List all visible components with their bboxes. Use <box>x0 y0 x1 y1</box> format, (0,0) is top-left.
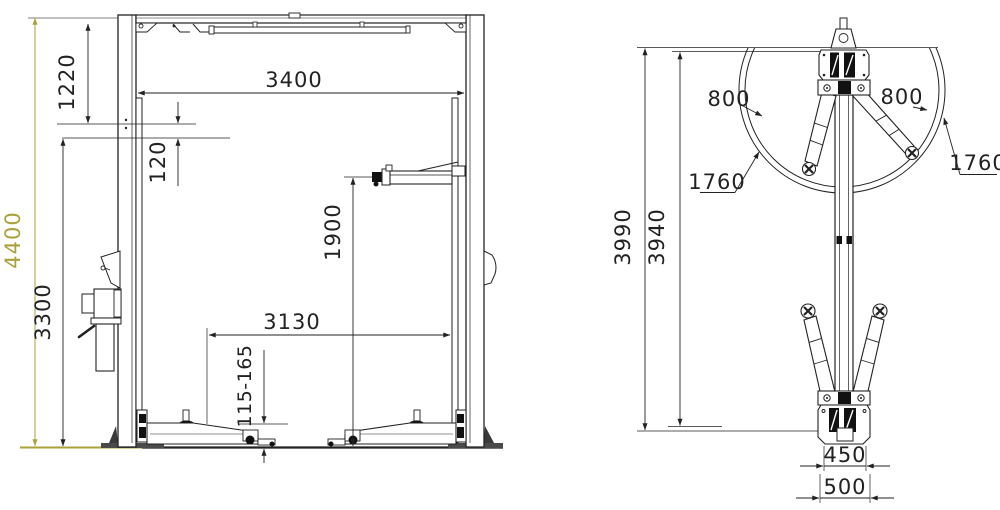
dim-1900-label: 1900 <box>321 203 345 260</box>
dim-115-165-label: 115-165 <box>234 345 256 428</box>
dim-3940-label: 3940 <box>645 208 669 265</box>
dim-3940: 3940 <box>645 53 680 426</box>
left-carriage <box>136 98 142 440</box>
funnel-knob <box>101 266 105 270</box>
oil-tank <box>96 324 114 371</box>
top-plate-bolt-3 <box>823 74 826 77</box>
raised-arm-body <box>390 171 452 184</box>
arm-caster-wheel <box>246 436 255 445</box>
raised-arm-pad-wheel <box>374 182 379 187</box>
bottom-arm-left <box>801 304 836 400</box>
motor-capacitor <box>82 294 94 313</box>
drawing-canvas: 4400 3300 1220 120 3400 1900 3130 <box>0 0 1000 510</box>
cable-clip-2 <box>193 24 209 32</box>
top-plate-bolt-1 <box>823 54 826 57</box>
bottom-arm-right <box>852 304 887 400</box>
bottom-pivot-pin-left-dot <box>826 397 828 399</box>
label-1760-left: 1760 <box>688 152 759 194</box>
dim-1220: 1220 <box>55 24 88 123</box>
dim-1900: 1900 <box>321 177 372 446</box>
left-column-bolt-dot-2 <box>125 127 127 129</box>
dim-120: 120 <box>146 102 178 186</box>
release-handle <box>79 326 94 337</box>
top-arm-left <box>803 92 837 176</box>
pump-plate <box>91 318 121 324</box>
top-beam <box>136 15 466 23</box>
bottom-pivot-center-block <box>838 392 851 404</box>
dim-500: 500 <box>796 474 894 503</box>
dim-4400: 4400 <box>1 18 35 446</box>
top-pivot-pin-left-dot <box>826 87 828 89</box>
raised-arm-pin <box>386 165 392 171</box>
dim-3990: 3990 <box>611 49 645 431</box>
side-view: 3990 3940 800 800 1760 1760 <box>611 0 1000 503</box>
dim-3300: 3300 <box>31 139 63 446</box>
left-column <box>118 15 136 447</box>
bottom-carriage-assembly <box>818 391 870 444</box>
top-pivot-pin-right-dot <box>860 87 862 89</box>
top-plate-bolt-4 <box>863 74 866 77</box>
dim-450: 450 <box>800 443 890 471</box>
bottom-pivot-pin-right-dot <box>860 397 862 399</box>
dim-3300-label: 3300 <box>31 283 55 340</box>
right-carriage <box>452 98 458 443</box>
label-800-left-text: 800 <box>707 87 750 111</box>
switch-bar-hanger-1 <box>253 22 257 27</box>
two-post-lift-technical-drawing: 4400 3300 1220 120 3400 1900 3130 <box>0 0 1000 510</box>
arm-hw-block-1 <box>139 414 146 423</box>
dim-3400: 3400 <box>138 68 464 93</box>
top-stem <box>840 18 847 29</box>
overhead-switch-bar <box>214 27 406 33</box>
dim-4400-label: 4400 <box>1 211 25 268</box>
motor-mount-strip <box>114 290 121 317</box>
bottom-arm-right-body <box>852 316 884 400</box>
bottom-arm-left-body <box>804 316 836 400</box>
base-gusset-right <box>484 426 494 443</box>
label-800-left: 800 <box>707 87 762 116</box>
front-view: 4400 3300 1220 120 3400 1900 3130 <box>1 13 503 463</box>
top-carriage-assembly <box>818 18 870 95</box>
top-cap <box>831 29 856 48</box>
arm-pad-pin <box>183 410 189 421</box>
switch-bar-endcap-left <box>209 26 214 34</box>
dim-450-label: 450 <box>823 443 866 467</box>
dim-3130-label: 3130 <box>263 310 320 334</box>
cable-clip-1-dot <box>173 25 176 28</box>
label-1760-left-text: 1760 <box>688 170 745 194</box>
switch-bar-endcap-right <box>406 26 410 33</box>
arm-foot-wheel <box>270 442 275 447</box>
beam-center-connector <box>289 13 300 18</box>
left-column-bolt-dot-1 <box>125 119 127 121</box>
unlock-lever-right <box>484 251 496 285</box>
dim-500-label: 500 <box>823 475 866 499</box>
swing-arm-raised <box>372 162 465 187</box>
arm-hw-block-2 <box>139 427 146 438</box>
raised-arm-mount <box>452 166 465 176</box>
right-column <box>466 15 484 447</box>
column-mid-mark-1 <box>837 236 843 244</box>
bottom-plate-notch <box>837 428 853 441</box>
dim-1220-label: 1220 <box>55 53 79 110</box>
label-800-right: 800 <box>880 85 927 110</box>
switch-bar-hanger-2 <box>360 22 364 27</box>
dim-3400-label: 3400 <box>265 68 322 92</box>
top-pivot-center-block <box>838 81 851 94</box>
label-800-right-text: 800 <box>880 85 923 109</box>
column-mid-mark-2 <box>847 236 853 244</box>
jack-arm-lowered-right <box>328 410 466 447</box>
dim-3990-label: 3990 <box>611 208 635 265</box>
top-plate-bolt-2 <box>863 54 866 57</box>
base-gusset-left <box>109 426 118 443</box>
label-1760-right: 1760 <box>944 118 1000 175</box>
cable-clip-1 <box>173 24 190 32</box>
power-unit <box>79 251 121 371</box>
label-800-left-leader <box>743 106 762 116</box>
top-arm-left-body <box>805 92 836 166</box>
raised-arm-pad-block <box>372 172 382 182</box>
dim-120-label: 120 <box>146 140 170 183</box>
